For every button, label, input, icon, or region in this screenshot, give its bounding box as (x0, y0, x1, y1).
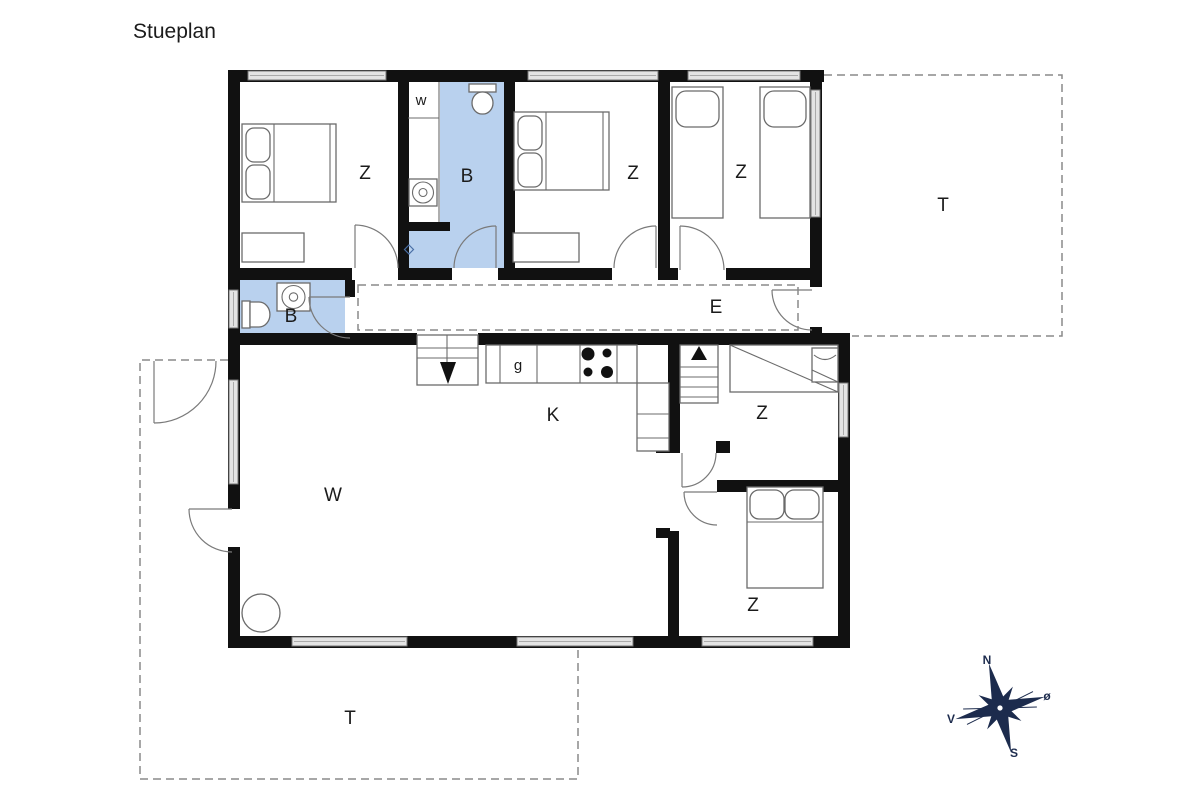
room-label-living: W (324, 485, 342, 506)
compass-label-west: V (947, 712, 955, 726)
room-label-bedroom-n: Z (627, 163, 639, 184)
plan-title: Stueplan (133, 20, 216, 43)
double-bed (242, 124, 336, 202)
room-label-terrace-right: T (937, 195, 949, 216)
room-label-bathroom-left: B (285, 306, 298, 327)
room-label-hallway: E (710, 297, 723, 318)
furniture (242, 82, 838, 632)
double-bed (747, 487, 823, 588)
pillow (518, 153, 542, 187)
room-label-bathroom-top: B (461, 166, 474, 187)
room-label-bedroom-mid: Z (756, 403, 768, 424)
door-gap (810, 287, 822, 327)
wall-segment (656, 528, 670, 538)
pillow (676, 91, 719, 127)
wall-segment (398, 82, 409, 270)
room-label-pantry: g (514, 357, 522, 374)
wood-stove-icon (242, 594, 280, 632)
pillow (750, 490, 784, 519)
pillow (246, 128, 270, 162)
pillow (246, 165, 270, 199)
door-terrace-gate (154, 361, 216, 423)
wall-segment (228, 70, 240, 648)
single-bed (672, 87, 723, 218)
pillow (785, 490, 819, 519)
room-label-kitchen: K (547, 405, 560, 426)
double-bed (514, 112, 609, 190)
room-label-bedroom-nw: Z (359, 163, 371, 184)
room-label-bedroom-ne: Z (735, 162, 747, 183)
single-bed (760, 87, 810, 218)
door-living-terrace (189, 509, 232, 552)
door-bedroom-n (614, 226, 656, 268)
compass-rose: N ø S V (944, 652, 1056, 764)
stairs-up (680, 345, 718, 403)
compass-label-north: N (983, 653, 992, 667)
room-label-bedroom-se: Z (747, 595, 759, 616)
door-bedroom-ne (680, 226, 724, 270)
wall-segment (228, 333, 850, 345)
terrace-bottom-outline (140, 360, 578, 779)
door-gap (612, 268, 658, 280)
wall-segment (345, 280, 355, 297)
door-bedroom-nw (355, 225, 398, 268)
floorplan-drawing: Stueplan (0, 0, 1200, 800)
dresser (513, 233, 579, 262)
wall-segment (716, 441, 730, 453)
room-label-closet: w (415, 92, 427, 109)
pillow (764, 91, 806, 127)
wall-segment (668, 531, 679, 637)
compass-label-south: S (1010, 746, 1018, 760)
wall-segment (658, 82, 670, 270)
washing-machine-icon (409, 179, 437, 206)
door-gap (228, 509, 240, 547)
dresser (242, 233, 304, 262)
wall-segment (228, 268, 822, 280)
door-entrance (772, 290, 812, 330)
pillow (518, 116, 542, 150)
hallway-outline (358, 285, 798, 330)
compass-label-east: ø (1043, 689, 1051, 703)
door-gap (678, 268, 726, 280)
door-bedroom-mid (682, 453, 716, 487)
door-gap (452, 268, 498, 280)
stairs-down (417, 335, 478, 385)
wardrobe (812, 348, 838, 382)
wall-segment (403, 222, 450, 231)
toilet-icon (242, 301, 270, 328)
door-gap (352, 268, 398, 280)
floorplan-page: Stueplan (0, 0, 1200, 800)
door-bedroom-se (684, 492, 717, 525)
wall-segment (668, 345, 680, 453)
room-label-terrace-bottom: T (344, 708, 356, 729)
